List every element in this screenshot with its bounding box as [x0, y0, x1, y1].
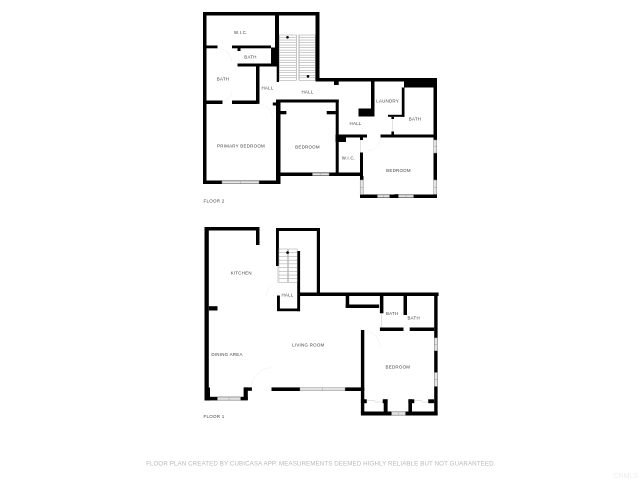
- svg-text:FLOOR 2: FLOOR 2: [204, 198, 225, 203]
- svg-text:BEDROOM: BEDROOM: [386, 364, 411, 369]
- svg-text:HALL: HALL: [281, 293, 293, 298]
- svg-text:BATH: BATH: [217, 77, 230, 82]
- svg-text:KITCHEN: KITCHEN: [231, 271, 252, 276]
- svg-text:HALL: HALL: [261, 86, 273, 91]
- svg-text:BATH: BATH: [409, 116, 422, 121]
- svg-text:BATH: BATH: [407, 315, 420, 320]
- svg-text:DINING AREA: DINING AREA: [211, 352, 242, 357]
- svg-text:CRMLS: CRMLS: [613, 473, 638, 480]
- svg-text:HALL: HALL: [301, 90, 313, 95]
- svg-text:BEDROOM: BEDROOM: [386, 168, 411, 173]
- svg-text:BATH: BATH: [244, 55, 257, 60]
- svg-text:LAUNDRY: LAUNDRY: [376, 98, 399, 103]
- svg-text:FLOOR 1: FLOOR 1: [204, 414, 225, 419]
- svg-text:BATH: BATH: [386, 311, 399, 316]
- svg-text:W.I.C.: W.I.C.: [342, 156, 356, 161]
- svg-text:HALL: HALL: [350, 121, 362, 126]
- svg-text:W.I.C.: W.I.C.: [234, 30, 248, 35]
- svg-text:LIVING ROOM: LIVING ROOM: [292, 343, 324, 348]
- svg-text:PRIMARY BEDROOM: PRIMARY BEDROOM: [217, 144, 265, 149]
- svg-text:BEDROOM: BEDROOM: [295, 144, 320, 149]
- svg-text:FLOOR PLAN CREATED BY CUBICASA: FLOOR PLAN CREATED BY CUBICASA APP. MEAS…: [146, 461, 496, 468]
